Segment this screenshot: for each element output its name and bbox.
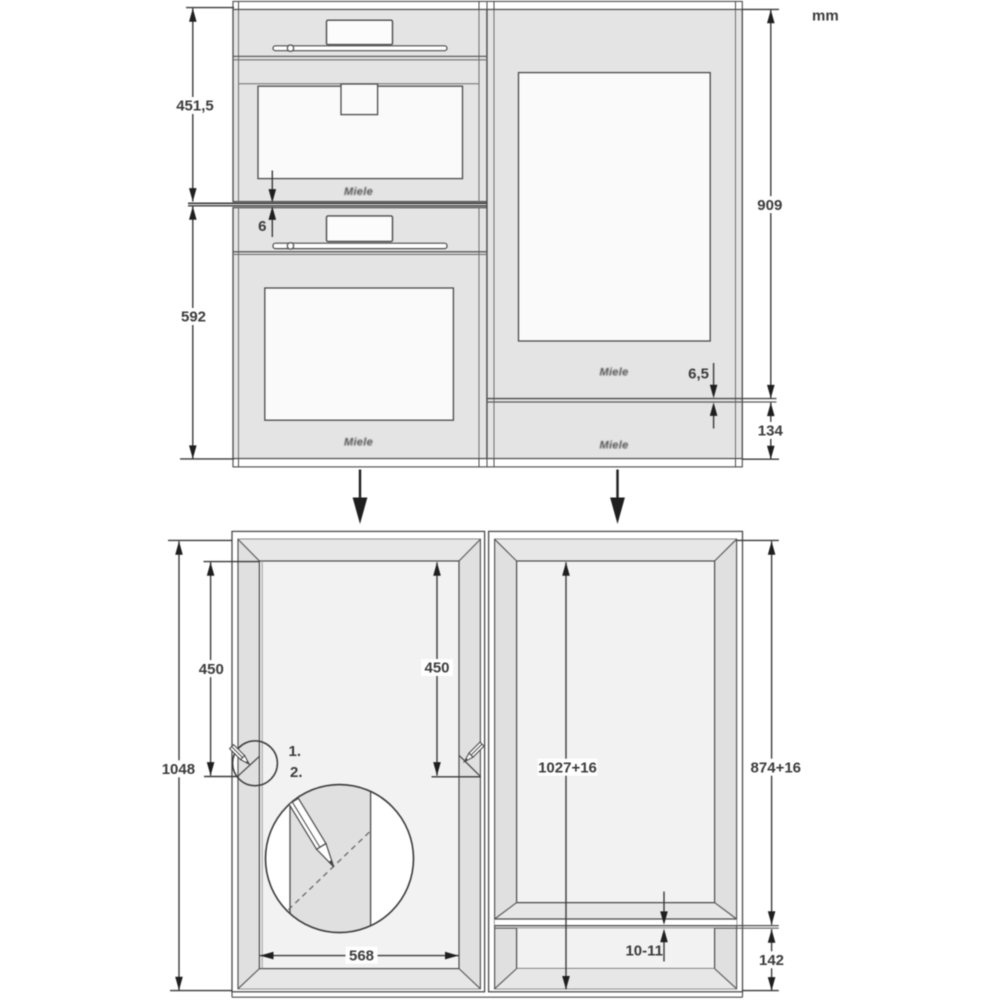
svg-text:1027+16: 1027+16 — [538, 759, 597, 776]
svg-text:Miele: Miele — [599, 366, 628, 378]
svg-text:909: 909 — [757, 197, 782, 214]
svg-text:451,5: 451,5 — [176, 98, 214, 115]
svg-text:Miele: Miele — [344, 437, 373, 449]
svg-text:mm: mm — [812, 8, 839, 25]
svg-text:2.: 2. — [290, 764, 303, 781]
svg-text:1048: 1048 — [162, 761, 195, 778]
svg-text:Miele: Miele — [599, 440, 628, 452]
svg-text:1.: 1. — [289, 743, 302, 760]
svg-text:Miele: Miele — [344, 186, 373, 198]
svg-text:142: 142 — [759, 952, 784, 969]
svg-text:874+16: 874+16 — [751, 759, 801, 776]
svg-text:10-11: 10-11 — [625, 943, 663, 960]
svg-text:6,5: 6,5 — [688, 366, 709, 383]
svg-text:450: 450 — [424, 660, 449, 677]
svg-text:568: 568 — [349, 947, 374, 964]
svg-text:592: 592 — [181, 309, 206, 326]
svg-text:134: 134 — [758, 423, 784, 440]
svg-text:450: 450 — [199, 661, 224, 678]
svg-text:6: 6 — [258, 218, 266, 235]
